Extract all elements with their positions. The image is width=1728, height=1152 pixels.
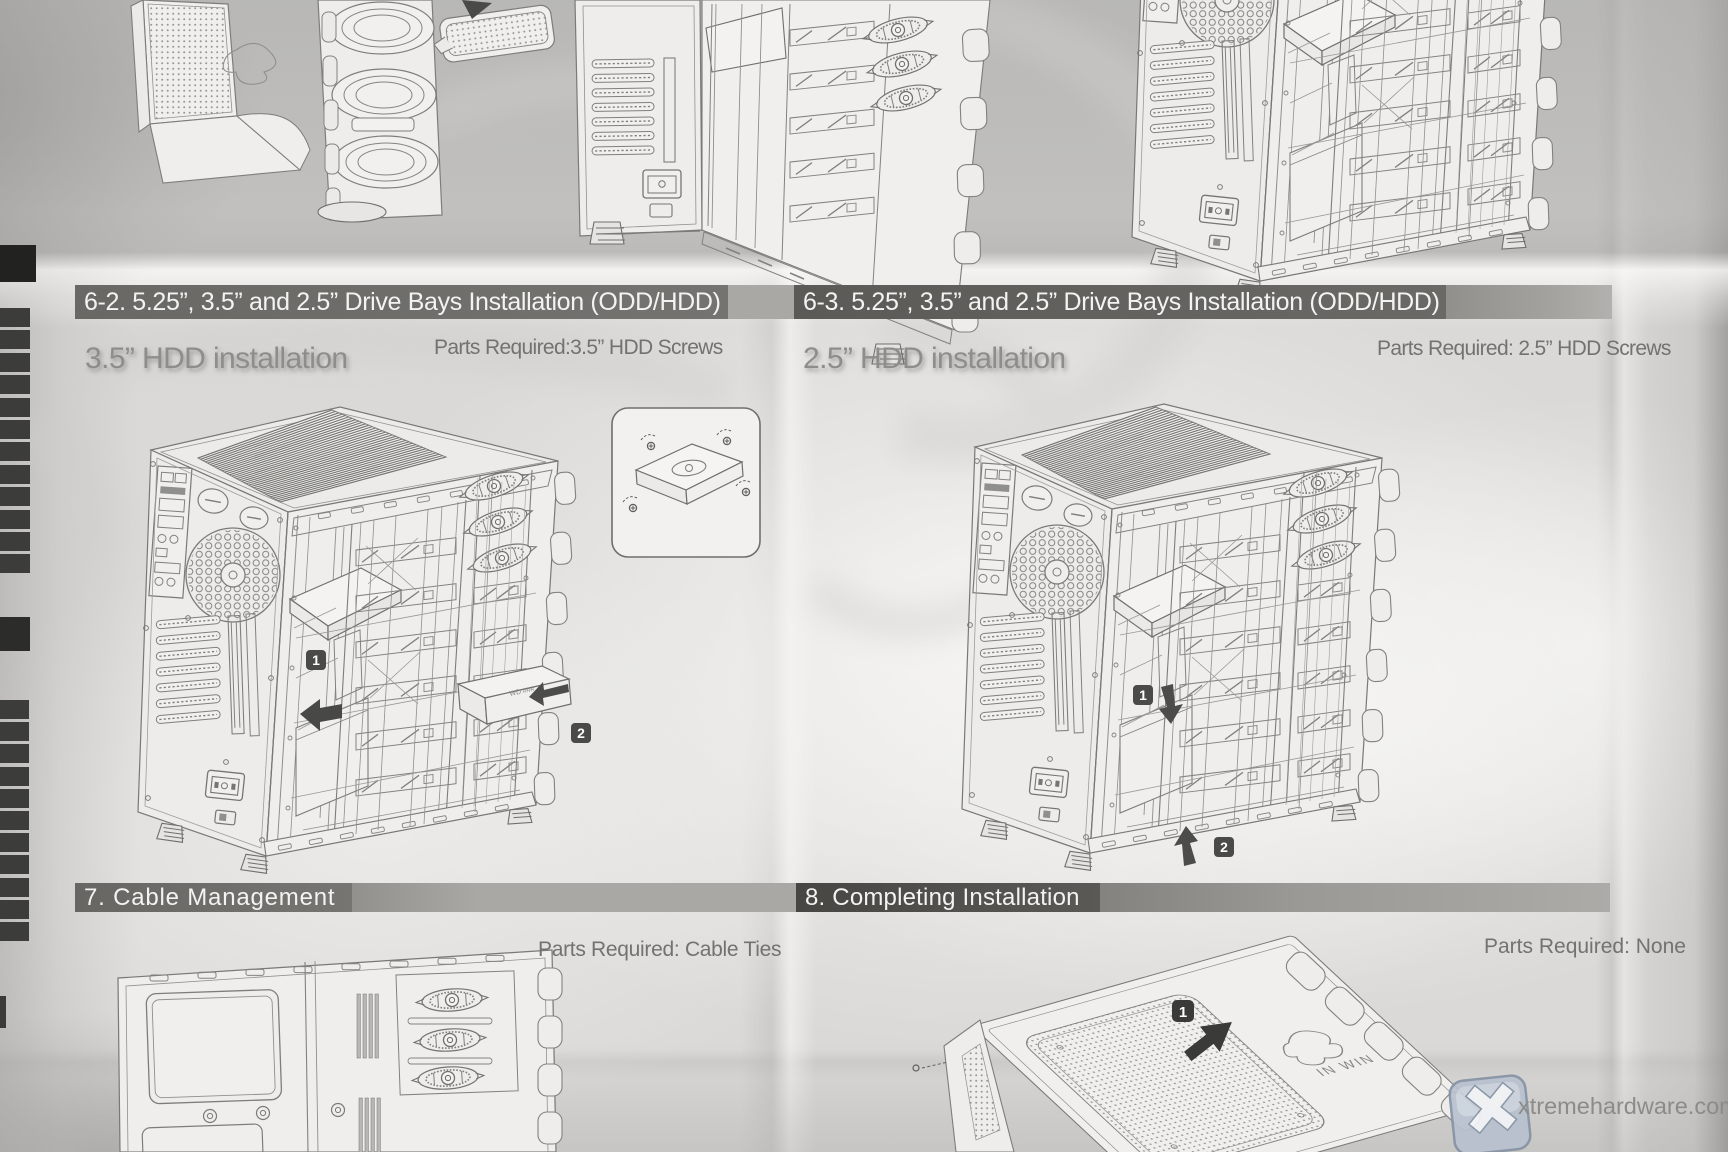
svg-text:xtremehardware.com: xtremehardware.com: [1518, 1093, 1728, 1119]
svg-text:2: 2: [577, 725, 585, 741]
svg-text:2: 2: [1220, 839, 1228, 855]
svg-text:1: 1: [1139, 687, 1147, 703]
svg-text:1: 1: [1179, 1004, 1187, 1021]
svg-text:1: 1: [312, 652, 320, 668]
